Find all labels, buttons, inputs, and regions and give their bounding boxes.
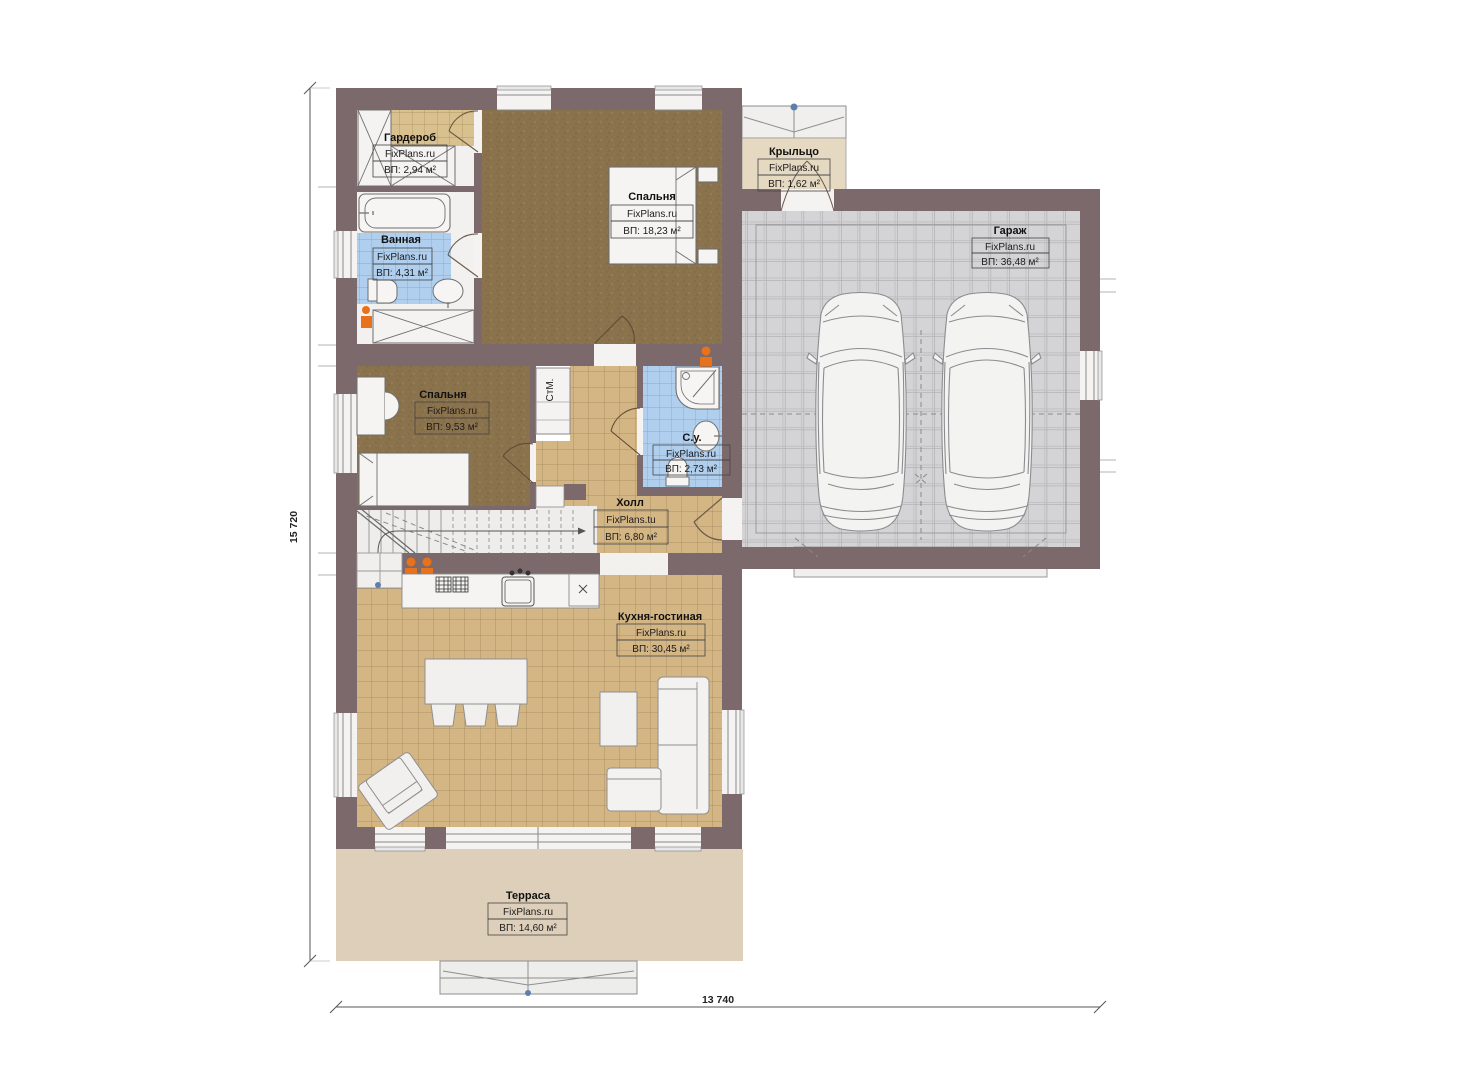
svg-text:FixPlans.ru: FixPlans.ru bbox=[985, 242, 1035, 253]
svg-text:FixPlans.ru: FixPlans.ru bbox=[503, 907, 553, 918]
svg-text:ВП: 4,31 м²: ВП: 4,31 м² bbox=[376, 268, 429, 279]
svg-text:Спальня: Спальня bbox=[419, 389, 467, 401]
svg-text:Гараж: Гараж bbox=[994, 225, 1027, 237]
svg-text:С.у.: С.у. bbox=[682, 432, 701, 444]
svg-text:ВП: 1,62 м²: ВП: 1,62 м² bbox=[768, 179, 821, 190]
svg-text:FixPlans.ru: FixPlans.ru bbox=[377, 252, 427, 263]
svg-text:13 740: 13 740 bbox=[702, 994, 734, 1006]
svg-text:15 720: 15 720 bbox=[288, 511, 300, 543]
svg-text:FixPlans.ru: FixPlans.ru bbox=[385, 149, 435, 160]
svg-text:FixPlans.ru: FixPlans.ru bbox=[427, 406, 477, 417]
svg-text:Спальня: Спальня bbox=[628, 191, 676, 203]
svg-text:FixPlans.ru: FixPlans.ru bbox=[627, 209, 677, 220]
svg-text:Гардероб: Гардероб bbox=[384, 132, 436, 144]
svg-text:ВП: 2,94 м²: ВП: 2,94 м² bbox=[384, 165, 437, 176]
svg-text:ВП: 36,48 м²: ВП: 36,48 м² bbox=[981, 257, 1039, 268]
svg-text:Ванная: Ванная bbox=[381, 234, 421, 246]
svg-text:FixPlans.ru: FixPlans.ru bbox=[666, 449, 716, 460]
svg-text:Терраса: Терраса bbox=[506, 890, 551, 902]
svg-text:ВП: 6,80 м²: ВП: 6,80 м² bbox=[605, 532, 658, 543]
svg-text:FixPlans.tu: FixPlans.tu bbox=[606, 515, 655, 526]
svg-text:ВП: 9,53 м²: ВП: 9,53 м² bbox=[426, 422, 479, 433]
svg-text:Крыльцо: Крыльцо bbox=[769, 146, 819, 158]
svg-text:ВП: 14,60 м²: ВП: 14,60 м² bbox=[499, 923, 557, 934]
svg-text:ВП: 18,23 м²: ВП: 18,23 м² bbox=[623, 226, 681, 237]
svg-text:Холл: Холл bbox=[616, 497, 644, 509]
svg-text:СтМ.: СтМ. bbox=[545, 379, 556, 402]
svg-text:ВП: 2,73 м²: ВП: 2,73 м² bbox=[665, 464, 718, 475]
svg-text:ВП: 30,45 м²: ВП: 30,45 м² bbox=[632, 644, 690, 655]
svg-text:Кухня-гостиная: Кухня-гостиная bbox=[618, 611, 702, 623]
svg-text:FixPlans.ru: FixPlans.ru bbox=[769, 163, 819, 174]
svg-text:FixPlans.ru: FixPlans.ru bbox=[636, 628, 686, 639]
